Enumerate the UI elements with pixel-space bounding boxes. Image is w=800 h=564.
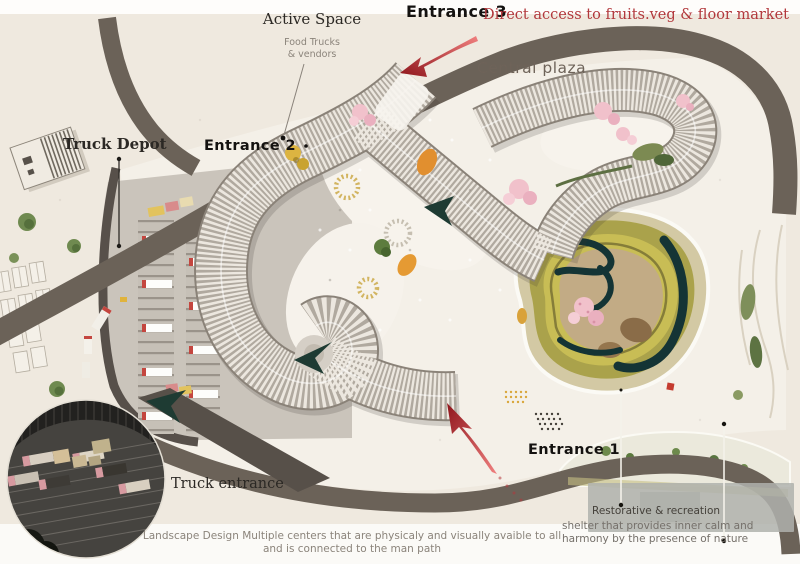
central-plaza-label: Central plaza: [477, 60, 586, 77]
entrance-1-label: Entrance 1: [528, 442, 620, 458]
caption-line-2: and is connected to the man path: [263, 544, 441, 556]
restorative-line-1: shelter that provides inner calm and: [562, 521, 753, 533]
active-space-label: Active Space: [263, 11, 361, 28]
restorative-title: Restorative & recreation: [592, 506, 720, 518]
food-trucks-label: Food Trucks: [284, 38, 340, 49]
masterplan-poster: Entrance 3 Direct access to fruits.veg &…: [0, 0, 800, 564]
truck-depot-label: Truck Depot: [63, 136, 167, 153]
red-marker: [666, 383, 674, 391]
caption-line-1: Landscape Design Multiple centers that a…: [143, 531, 561, 543]
site-plan-rendering: [0, 0, 800, 564]
entrance-2-label: Entrance 2: [204, 138, 296, 154]
truck-entrance-label: Truck entrance: [171, 476, 284, 492]
entrance-3-description: Direct access to fruits.veg & floor mark…: [483, 7, 789, 23]
vendors-label: & vendors: [288, 50, 337, 61]
restorative-line-2: harmony by the presence of nature: [562, 534, 748, 546]
